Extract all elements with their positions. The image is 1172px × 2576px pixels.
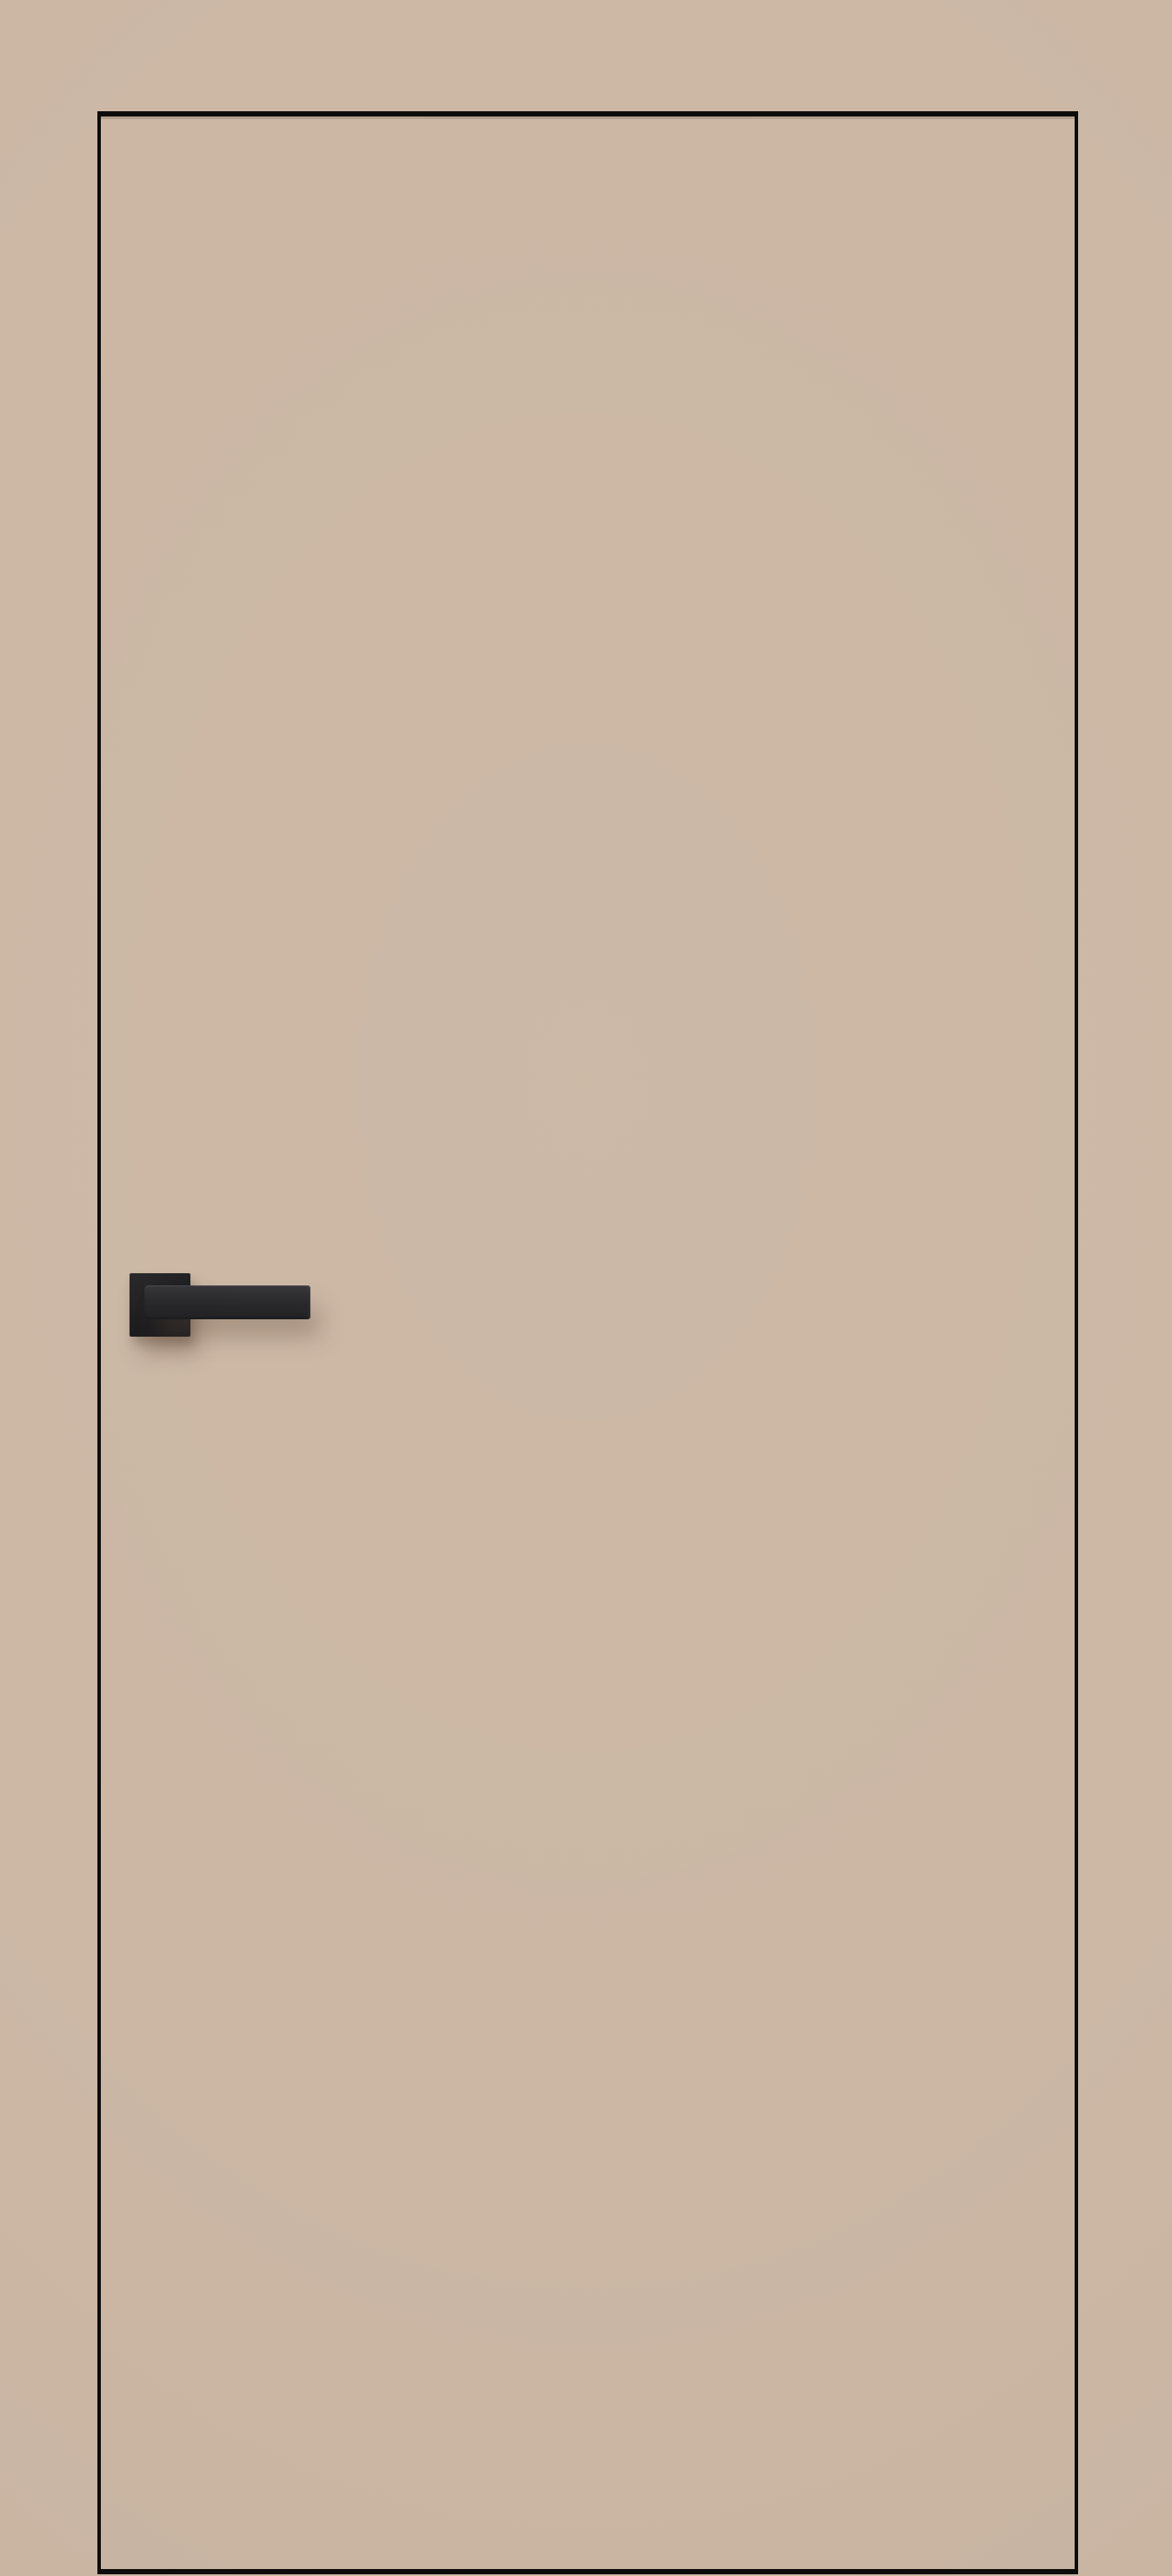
wall-background — [0, 0, 1172, 2576]
handle-lever — [144, 1285, 310, 1319]
door-handle — [130, 1273, 325, 1356]
